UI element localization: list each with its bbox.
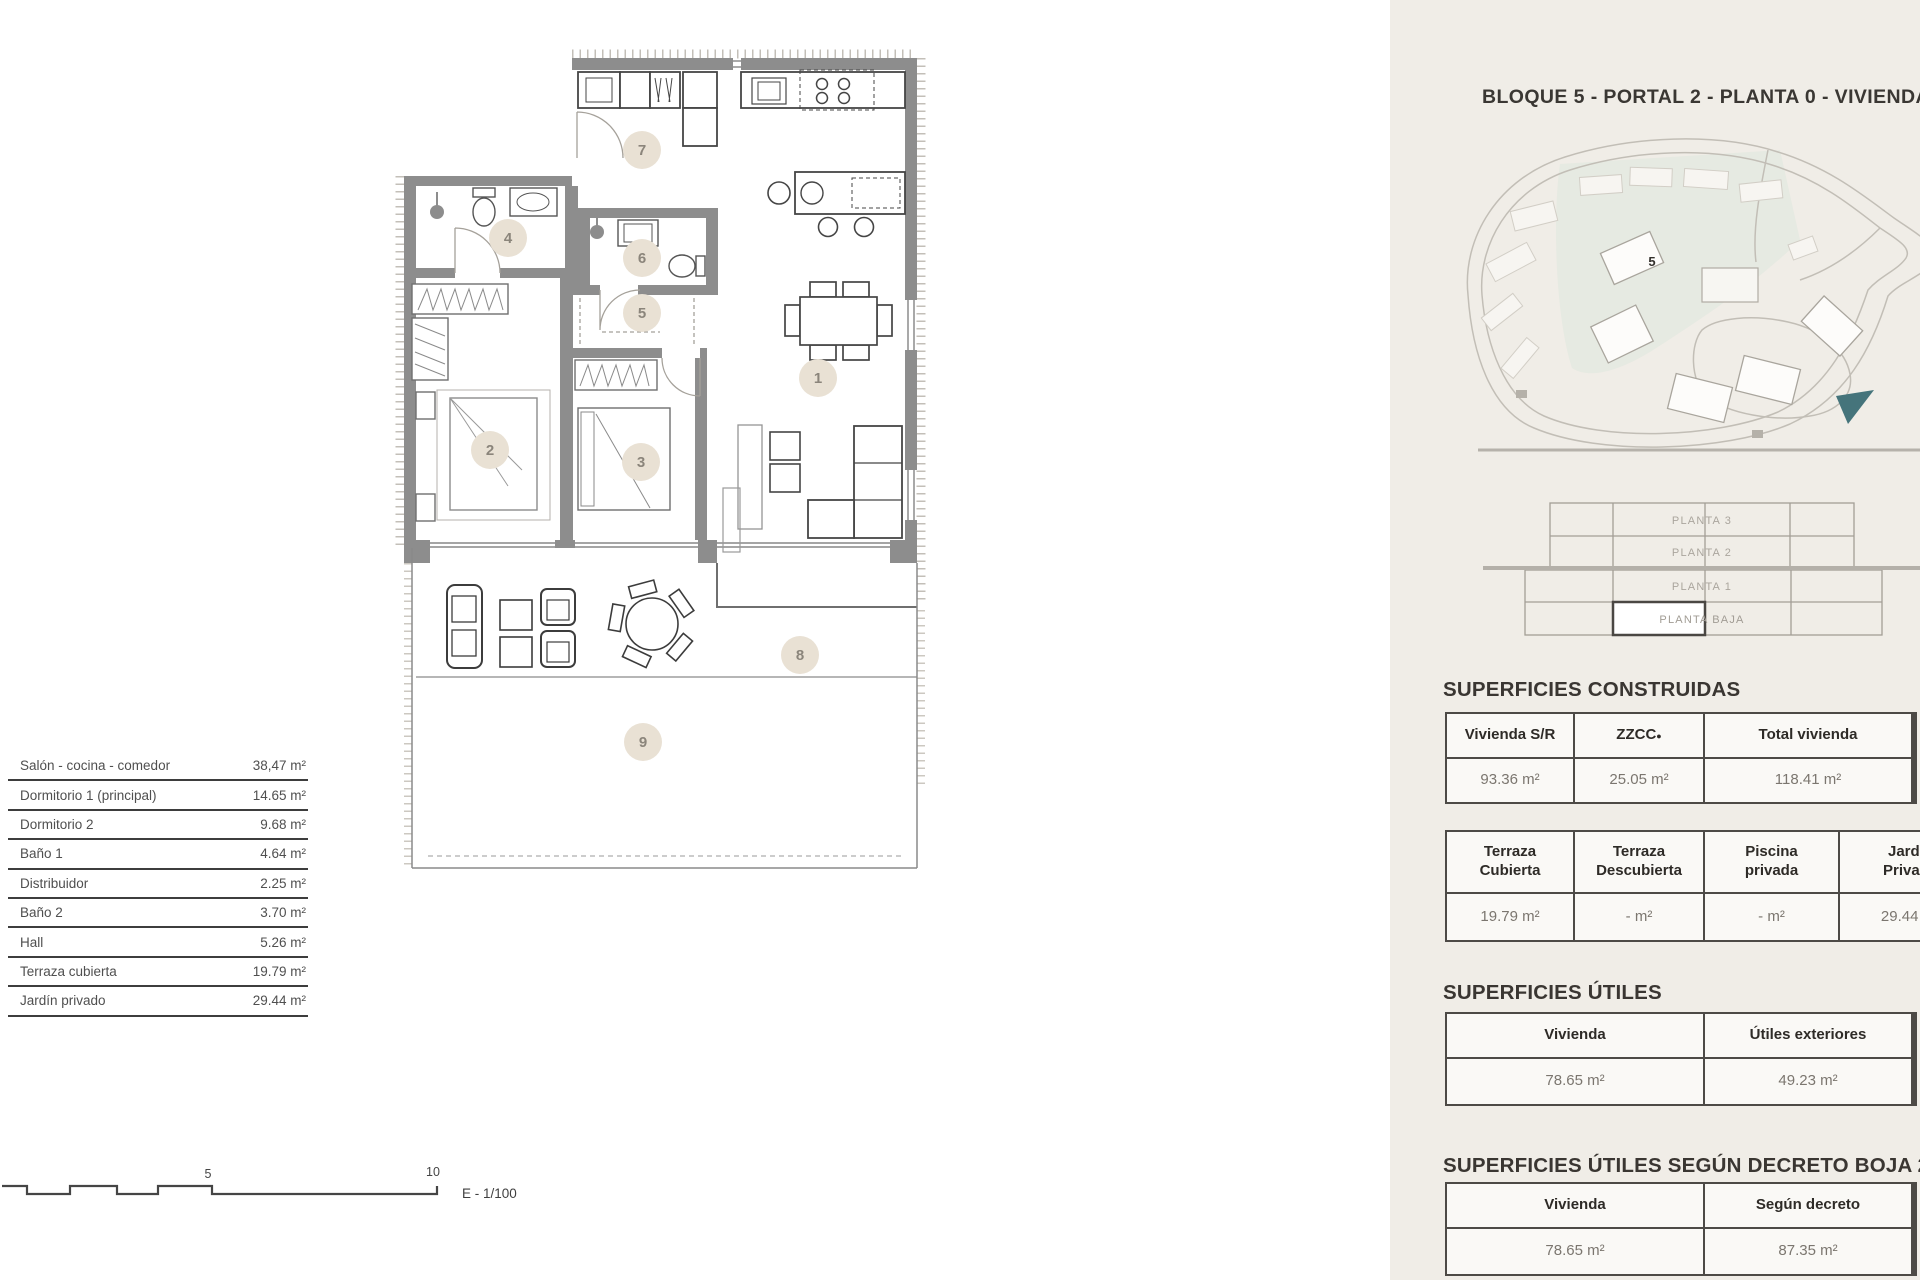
road-marker xyxy=(1752,430,1763,438)
legend-row: Terraza cubierta19.79 m² xyxy=(8,958,308,987)
svg-text:2: 2 xyxy=(486,442,494,459)
road-marker xyxy=(1516,390,1527,398)
svg-text:8: 8 xyxy=(796,647,804,664)
room-marker-4: 4 xyxy=(489,219,527,257)
room-name: Dormitorio 2 xyxy=(20,817,94,832)
value-vivienda-sr: 93.36 m² xyxy=(1447,759,1573,802)
value-terraza-cubierta: 19.79 m² xyxy=(1447,894,1573,940)
room-area: 38,47 m² xyxy=(253,758,306,773)
heading-superficies-utiles: SUPERFICIES ÚTILES xyxy=(1443,981,1662,1005)
value-jardin-privado: 29.44 m² xyxy=(1840,894,1920,940)
col-header-vivienda-decreto: Vivienda xyxy=(1447,1184,1703,1227)
value-terraza-descubierta: - m² xyxy=(1575,894,1703,940)
svg-text:4: 4 xyxy=(504,230,513,247)
zzcc-label: ZZCC xyxy=(1616,726,1656,745)
room-marker-5: 5 xyxy=(623,294,661,332)
room-legend: Salón - cocina - comedor38,47 m² Dormito… xyxy=(8,752,308,1017)
page-title: BLOQUE 5 - PORTAL 2 - PLANTA 0 - VIVIEND… xyxy=(1482,86,1920,109)
location-arrow-icon xyxy=(1836,390,1874,424)
table-decreto: Vivienda Según decreto 78.65 m² 87.35 m² xyxy=(1445,1182,1917,1276)
terrace-boundaries xyxy=(412,488,917,868)
legend-row: Distribuidor2.25 m² xyxy=(8,870,308,899)
legend-row: Hall5.26 m² xyxy=(8,928,308,957)
col-header-zzcc: ZZCC● xyxy=(1575,714,1703,757)
value-segun-decreto: 87.35 m² xyxy=(1705,1229,1911,1274)
pool xyxy=(1702,268,1758,302)
col-header-total-vivienda: Total vivienda xyxy=(1705,714,1911,757)
legend-row: Jardín privado29.44 m² xyxy=(8,987,308,1016)
col-header-terraza-descubierta: TerrazaDescubierta xyxy=(1575,832,1703,892)
col-header-vivienda-sr: Vivienda S/R xyxy=(1447,714,1573,757)
room-name: Dormitorio 1 (principal) xyxy=(20,788,157,803)
floor-label-plantabaja: PLANTA BAJA xyxy=(1659,614,1744,626)
dining-table xyxy=(785,282,892,360)
floor-label-planta3: PLANTA 3 xyxy=(1672,515,1732,527)
room-marker-7: 7 xyxy=(623,131,661,169)
site-map: 5 xyxy=(1452,126,1920,452)
room-marker-3: 3 xyxy=(622,443,660,481)
kitchen-counters xyxy=(578,70,905,146)
svg-text:7: 7 xyxy=(638,142,646,159)
block-5-label: 5 xyxy=(1648,254,1655,269)
wardrobes xyxy=(412,284,657,390)
room-marker-8: 8 xyxy=(781,636,819,674)
heading-superficies-decreto: SUPERFICIES ÚTILES SEGÚN DECRETO BOJA 21… xyxy=(1443,1154,1920,1178)
room-area: 9.68 m² xyxy=(260,817,306,832)
legend-row: Dormitorio 29.68 m² xyxy=(8,811,308,840)
room-marker-6: 6 xyxy=(623,239,661,277)
value-utiles-exteriores: 49.23 m² xyxy=(1705,1059,1911,1104)
room-area: 2.25 m² xyxy=(260,876,306,891)
table-construidas: Vivienda S/R ZZCC● Total vivienda 93.36 … xyxy=(1445,712,1917,804)
room-area: 29.44 m² xyxy=(253,993,306,1008)
svg-text:6: 6 xyxy=(638,250,646,267)
bathroom-1-fixtures xyxy=(430,188,557,226)
scale-ratio-label: E - 1/100 xyxy=(462,1186,517,1201)
svg-text:5: 5 xyxy=(638,305,646,322)
table-utiles: Vivienda Útiles exteriores 78.65 m² 49.2… xyxy=(1445,1012,1917,1106)
floor-label-planta2: PLANTA 2 xyxy=(1672,547,1732,559)
legend-row: Dormitorio 1 (principal)14.65 m² xyxy=(8,781,308,810)
room-marker-9: 9 xyxy=(624,723,662,761)
kitchen-island xyxy=(768,172,905,237)
room-name: Hall xyxy=(20,935,43,950)
room-area: 5.26 m² xyxy=(260,935,306,950)
room-name: Baño 1 xyxy=(20,846,63,861)
col-header-vivienda-util: Vivienda xyxy=(1447,1014,1703,1057)
svg-text:1: 1 xyxy=(814,370,822,387)
room-area: 14.65 m² xyxy=(253,788,306,803)
col-header-utiles-exteriores: Útiles exteriores xyxy=(1705,1014,1911,1057)
room-name: Jardín privado xyxy=(20,993,106,1008)
value-vivienda-decreto: 78.65 m² xyxy=(1447,1229,1703,1274)
value-zzcc: 25.05 m² xyxy=(1575,759,1703,802)
scale-bar: 5 10 E - 1/100 xyxy=(2,1165,517,1201)
room-name: Distribuidor xyxy=(20,876,88,891)
floor-label-planta1: PLANTA 1 xyxy=(1672,581,1732,593)
sofa-area xyxy=(738,425,902,538)
legend-row: Baño 14.64 m² xyxy=(8,840,308,869)
room-area: 3.70 m² xyxy=(260,905,306,920)
room-area: 4.64 m² xyxy=(260,846,306,861)
table-exteriores-construidas: TerrazaCubierta TerrazaDescubierta Pisci… xyxy=(1445,830,1920,942)
floor-stack-diagram: PLANTA 3 PLANTA 2 PLANTA 1 PLANTA BAJA xyxy=(1440,488,1920,640)
room-marker-2: 2 xyxy=(471,431,509,469)
room-area: 19.79 m² xyxy=(253,964,306,979)
round-table-set xyxy=(608,580,693,667)
svg-text:9: 9 xyxy=(639,734,647,751)
value-vivienda-util: 78.65 m² xyxy=(1447,1059,1703,1104)
room-name: Salón - cocina - comedor xyxy=(20,758,170,773)
scale-mid-label: 5 xyxy=(205,1167,212,1181)
value-piscina-privada: - m² xyxy=(1705,894,1838,940)
room-name: Baño 2 xyxy=(20,905,63,920)
room-name: Terraza cubierta xyxy=(20,964,117,979)
col-header-segun-decreto: Según decreto xyxy=(1705,1184,1911,1227)
col-header-jardin-privado: JardínPrivado xyxy=(1840,832,1920,892)
scale-end-label: 10 xyxy=(426,1165,440,1179)
legend-row: Salón - cocina - comedor38,47 m² xyxy=(8,752,308,781)
info-panel: BLOQUE 5 - PORTAL 2 - PLANTA 0 - VIVIEND… xyxy=(1390,0,1920,1280)
heading-superficies-construidas: SUPERFICIES CONSTRUIDAS xyxy=(1443,678,1740,702)
legend-row: Baño 23.70 m² xyxy=(8,899,308,928)
value-total-vivienda: 118.41 m² xyxy=(1705,759,1911,802)
col-header-piscina-privada: Piscinaprivada xyxy=(1705,832,1838,892)
col-header-terraza-cubierta: TerrazaCubierta xyxy=(1447,832,1573,892)
svg-text:3: 3 xyxy=(637,454,645,471)
room-marker-1: 1 xyxy=(799,359,837,397)
floor-plan: 1 2 3 4 5 6 7 8 9 5 10 E - 1/100 xyxy=(0,0,1390,1280)
terrace-furniture xyxy=(447,580,694,668)
